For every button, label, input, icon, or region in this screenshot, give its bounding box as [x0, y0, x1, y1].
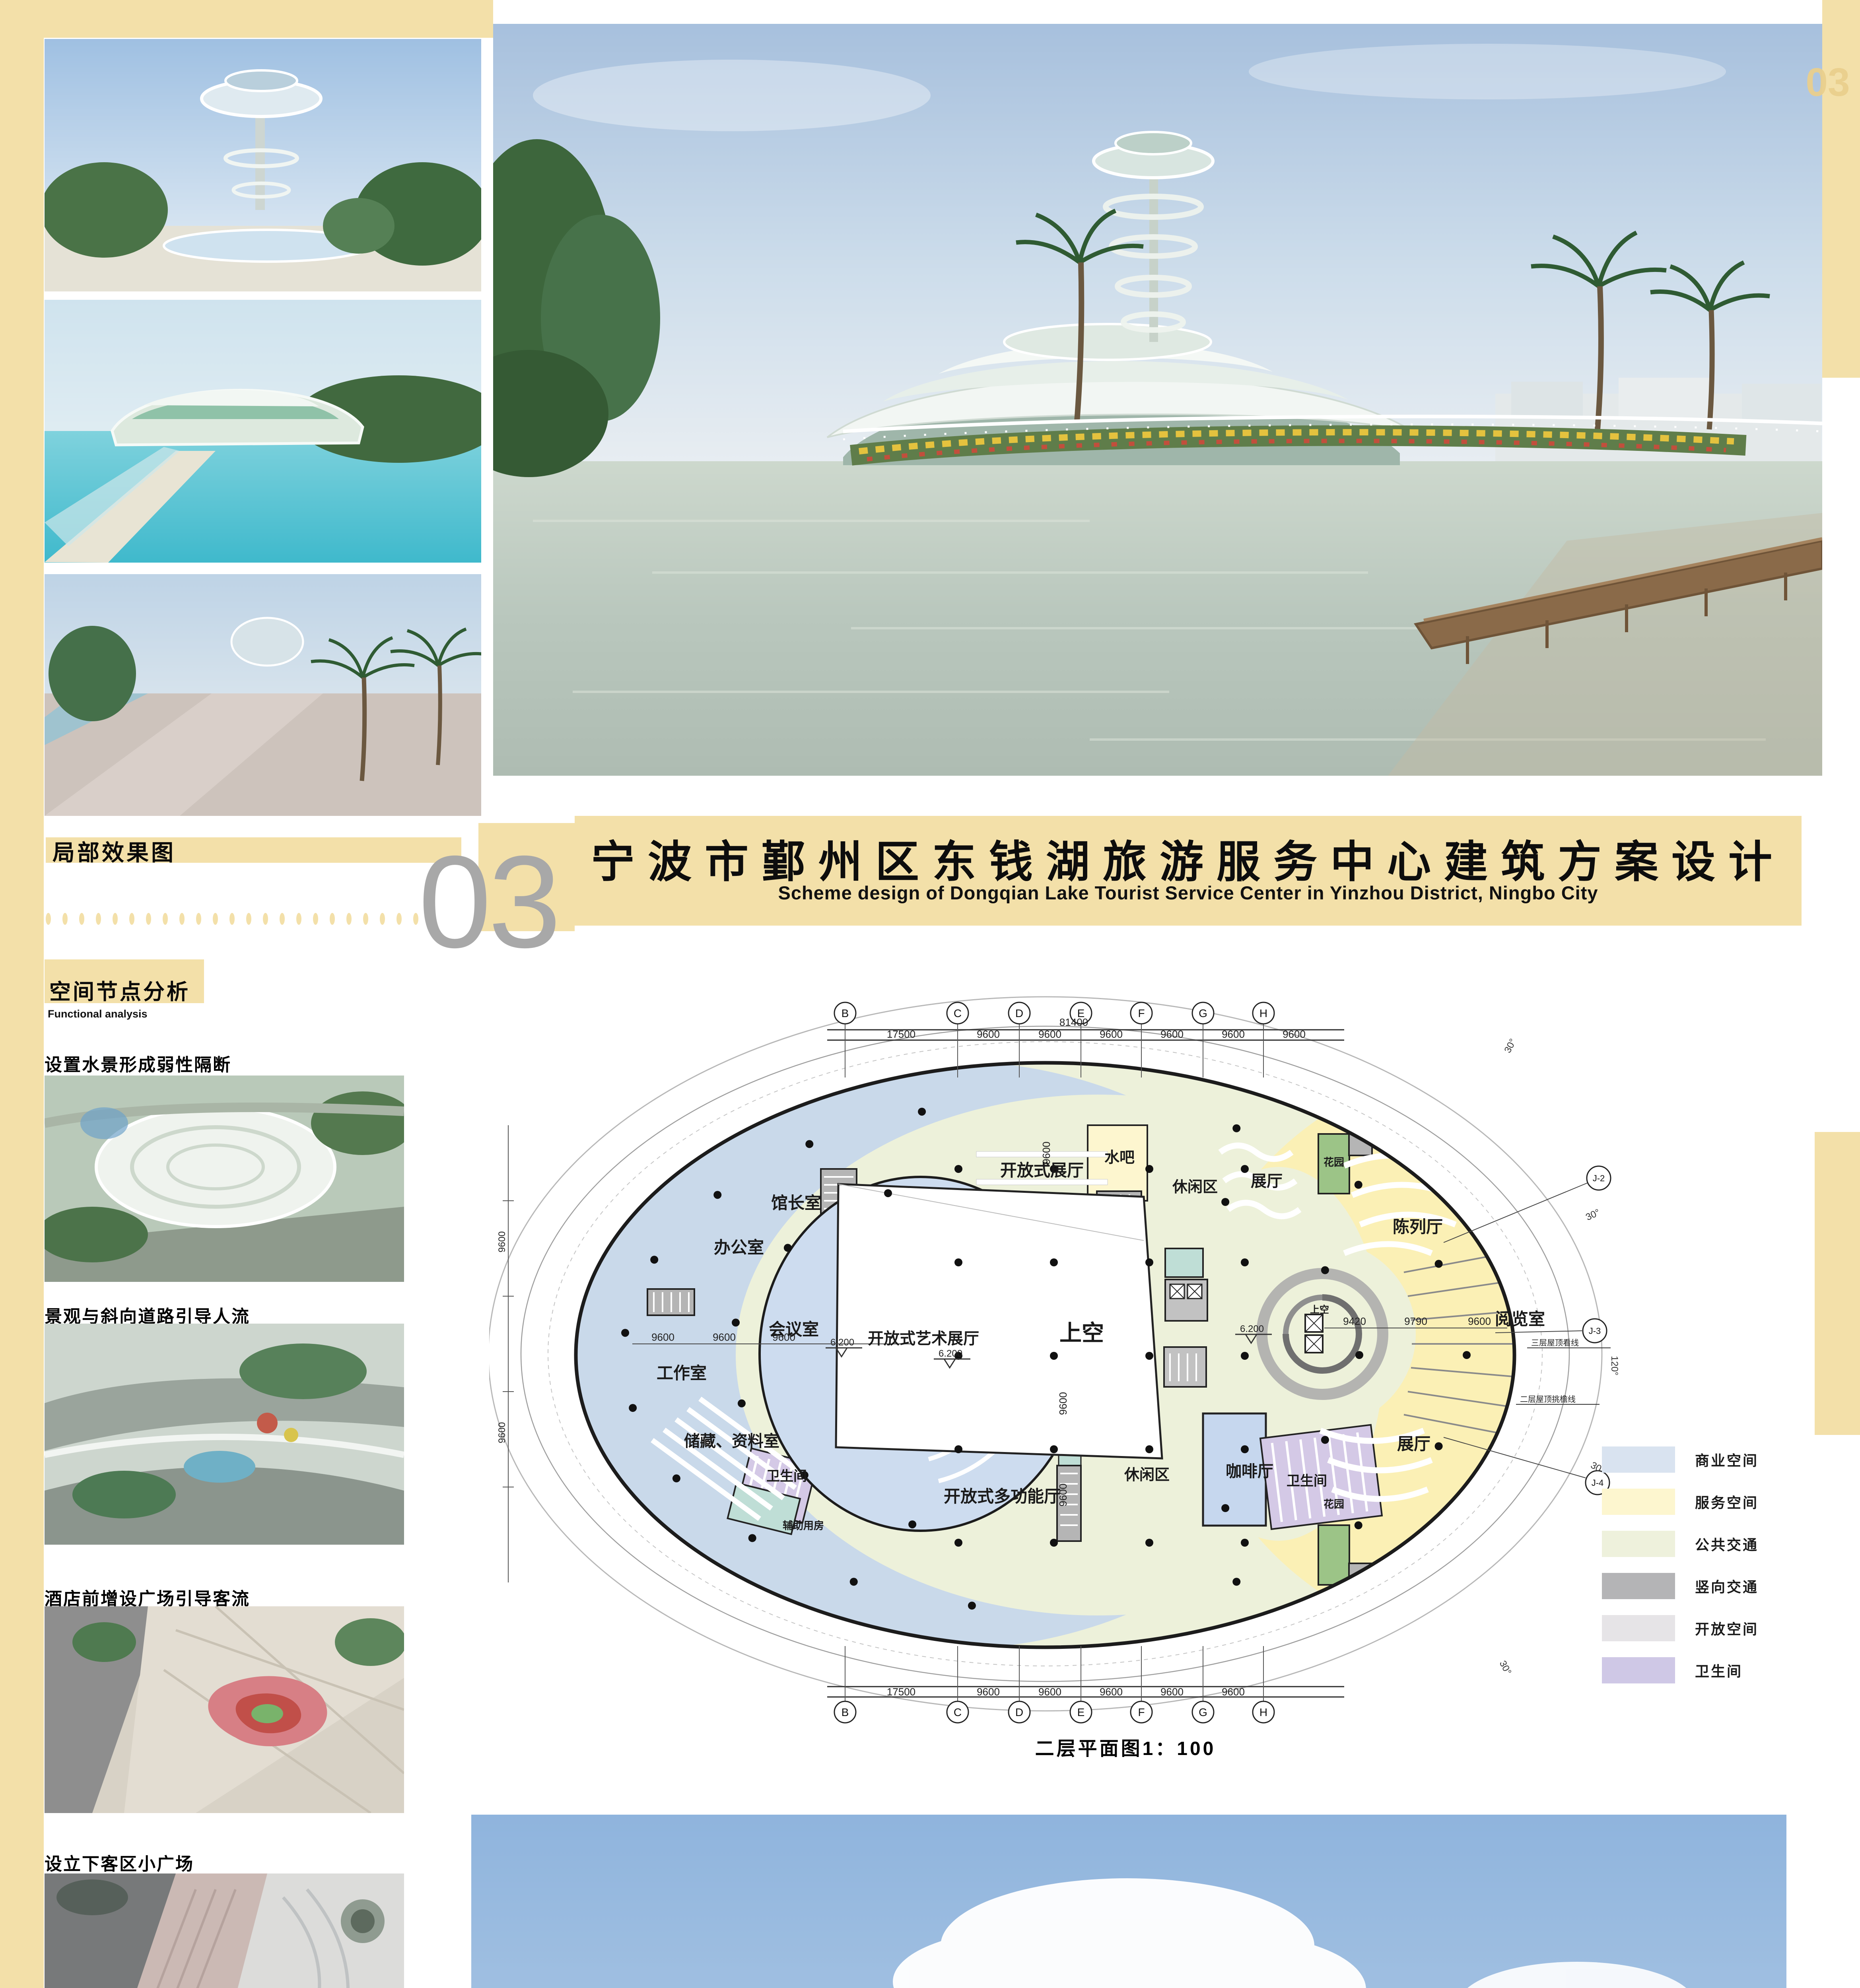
render-thumb-3: [45, 574, 481, 816]
svg-text:会议室: 会议室: [769, 1320, 819, 1339]
svg-text:三层屋顶看线: 三层屋顶看线: [1531, 1338, 1579, 1347]
legend-label: 公共交通: [1695, 1534, 1759, 1554]
legend-label: 开放空间: [1695, 1618, 1759, 1639]
page-title: 宁波市鄞州区东钱湖旅游服务中心建筑方案设计: [575, 826, 1802, 890]
svg-text:H: H: [1259, 1706, 1267, 1718]
legend-row: 公共交通: [1602, 1531, 1759, 1557]
right-top-strip: [1822, 0, 1860, 378]
hero-render-art: [493, 24, 1822, 776]
svg-text:办公室: 办公室: [714, 1238, 764, 1257]
legend-label: 竖向交通: [1695, 1576, 1759, 1596]
svg-text:上空: 上空: [1310, 1304, 1329, 1315]
corner-number: 03: [1796, 60, 1860, 105]
svg-text:水吧: 水吧: [1104, 1149, 1135, 1166]
dotted-divider: [46, 913, 447, 925]
svg-text:馆长室: 馆长室: [771, 1194, 821, 1212]
svg-text:9600: 9600: [1038, 1028, 1061, 1040]
plan-notes: 三层屋顶看线 二层屋顶挑檐线: [1516, 1338, 1611, 1404]
svg-text:9600: 9600: [977, 1028, 1000, 1040]
svg-text:花园: 花园: [1324, 1498, 1344, 1510]
svg-text:辅助用房: 辅助用房: [783, 1520, 824, 1532]
legend-label: 商业空间: [1695, 1449, 1759, 1470]
svg-text:30°: 30°: [1497, 1659, 1514, 1677]
legend-swatch-service: [1602, 1489, 1675, 1515]
svg-text:17500: 17500: [887, 1028, 915, 1040]
svg-text:9600: 9600: [1038, 1686, 1061, 1698]
poster-page: 局部效果图 03 空间节点分析 Functional analysis 设置水景…: [0, 0, 1860, 1988]
svg-text:C: C: [954, 1706, 962, 1718]
svg-text:9600: 9600: [651, 1331, 674, 1343]
svg-text:9600: 9600: [1160, 1028, 1184, 1040]
legend-row: 开放空间: [1602, 1615, 1759, 1641]
svg-text:卫生间: 卫生间: [1287, 1474, 1327, 1489]
svg-text:展厅: 展厅: [1397, 1435, 1430, 1453]
svg-text:J-2: J-2: [1593, 1173, 1605, 1183]
top-margin-bar: [0, 0, 493, 38]
analysis-caption-4: 设立下客区小广场: [45, 1850, 194, 1875]
svg-text:J-4: J-4: [1592, 1478, 1604, 1488]
legend-swatch-toilet: [1602, 1657, 1675, 1683]
render-label: 局部效果图: [52, 835, 176, 867]
legend-row: 服务空间: [1602, 1489, 1759, 1515]
svg-text:开放式多功能厅: 开放式多功能厅: [944, 1487, 1061, 1506]
left-margin-strip: [0, 0, 44, 1988]
analysis-image-3: [45, 1606, 404, 1813]
svg-text:花园: 花园: [1324, 1156, 1344, 1168]
plan-level-2: 6.200: [939, 1348, 962, 1359]
analysis-image-1: [45, 1076, 404, 1282]
hero-render-image: [493, 24, 1822, 776]
analysis-image-2: [45, 1324, 404, 1545]
svg-text:81400: 81400: [1059, 1016, 1088, 1028]
svg-text:F: F: [1138, 1706, 1145, 1718]
svg-text:二层屋顶挑檐线: 二层屋顶挑檐线: [1520, 1395, 1576, 1404]
section-subtitle: Functional analysis: [48, 1008, 148, 1020]
svg-text:储藏、资料室: 储藏、资料室: [684, 1433, 779, 1450]
svg-text:9600: 9600: [497, 1422, 507, 1443]
svg-text:9600: 9600: [1468, 1315, 1491, 1327]
svg-text:9600: 9600: [1100, 1028, 1123, 1040]
svg-text:D: D: [1015, 1007, 1023, 1019]
svg-text:30°: 30°: [1502, 1037, 1518, 1055]
svg-text:G: G: [1199, 1706, 1207, 1718]
svg-text:9600: 9600: [1222, 1686, 1245, 1698]
svg-text:C: C: [954, 1007, 962, 1019]
svg-text:B: B: [842, 1706, 849, 1718]
page-subtitle: Scheme design of Dongqian Lake Tourist S…: [575, 882, 1802, 904]
legend-row: 卫生间: [1602, 1657, 1743, 1683]
svg-text:9600: 9600: [1283, 1028, 1306, 1040]
svg-text:B: B: [842, 1007, 849, 1019]
svg-text:9600: 9600: [977, 1686, 1000, 1698]
svg-text:G: G: [1199, 1007, 1207, 1019]
legend-label: 服务空间: [1695, 1491, 1759, 1512]
legend-swatch-circulation: [1602, 1531, 1675, 1557]
svg-text:17500: 17500: [887, 1686, 915, 1698]
svg-text:陈列厅: 陈列厅: [1393, 1217, 1443, 1236]
svg-text:9600: 9600: [1160, 1686, 1184, 1698]
svg-text:工作室: 工作室: [657, 1364, 707, 1382]
svg-text:30°: 30°: [1584, 1207, 1602, 1223]
plan-axis-left: 9600 9600: [497, 1125, 514, 1582]
right-mid-block: [1815, 1132, 1860, 1435]
svg-text:E: E: [1077, 1706, 1085, 1718]
svg-text:卫生间: 卫生间: [766, 1469, 807, 1484]
svg-text:开放式展厅: 开放式展厅: [1000, 1161, 1084, 1180]
svg-text:咖啡厅: 咖啡厅: [1226, 1463, 1273, 1480]
svg-text:9600: 9600: [1057, 1392, 1069, 1415]
analysis-caption-1: 设置水景形成弱性隔断: [45, 1050, 231, 1076]
svg-text:9600: 9600: [1222, 1028, 1245, 1040]
svg-text:H: H: [1259, 1007, 1267, 1019]
legend-swatch-commercial: [1602, 1446, 1675, 1473]
plan-void: [836, 1184, 1162, 1458]
svg-text:9600: 9600: [713, 1331, 736, 1343]
legend-row: 商业空间: [1602, 1446, 1759, 1473]
plan-level-1: 6.200: [830, 1337, 854, 1348]
plan-caption: 二层平面图1：100: [986, 1733, 1265, 1761]
svg-text:展厅: 展厅: [1251, 1173, 1283, 1190]
section-title: 空间节点分析: [49, 974, 190, 1006]
svg-text:休闲区: 休闲区: [1172, 1179, 1218, 1196]
legend-swatch-open: [1602, 1615, 1675, 1641]
elevation-image: 62.600 57.600 27.600 23.100 12.400 5000 …: [471, 1815, 1786, 1988]
svg-text:9790: 9790: [1404, 1315, 1427, 1327]
render-thumb-2: [45, 300, 481, 563]
svg-text:上空: 上空: [1059, 1320, 1104, 1345]
svg-text:F: F: [1138, 1007, 1145, 1019]
svg-text:开放式艺术展厅: 开放式艺术展厅: [868, 1330, 979, 1347]
analysis-image-4: [45, 1873, 404, 1988]
svg-text:9600: 9600: [497, 1231, 507, 1252]
svg-text:阅览室: 阅览室: [1495, 1310, 1545, 1328]
svg-text:9600: 9600: [1100, 1686, 1123, 1698]
svg-text:J-3: J-3: [1589, 1326, 1601, 1336]
legend-row: 竖向交通: [1602, 1573, 1759, 1599]
floor-plan-svg: 6.200 6.200 6.200 BC DE FG H 81400 17500…: [489, 994, 1623, 1730]
plan-axis-bottom: BC DE FG H 17500 96009600 96009600 9600: [827, 1646, 1344, 1723]
svg-text:9420: 9420: [1343, 1315, 1366, 1327]
plan-level-3: 6.200: [1240, 1324, 1264, 1334]
svg-text:120°: 120°: [1609, 1356, 1620, 1376]
big-number: 03: [418, 842, 558, 961]
elevation-art: 62.600 57.600 27.600 23.100 12.400 5000 …: [471, 1815, 1786, 1988]
render-thumb-1: [45, 39, 481, 291]
legend-label: 卫生间: [1695, 1660, 1743, 1681]
legend-swatch-vertical: [1602, 1573, 1675, 1599]
svg-text:D: D: [1015, 1706, 1023, 1718]
svg-text:休闲区: 休闲区: [1124, 1467, 1170, 1483]
